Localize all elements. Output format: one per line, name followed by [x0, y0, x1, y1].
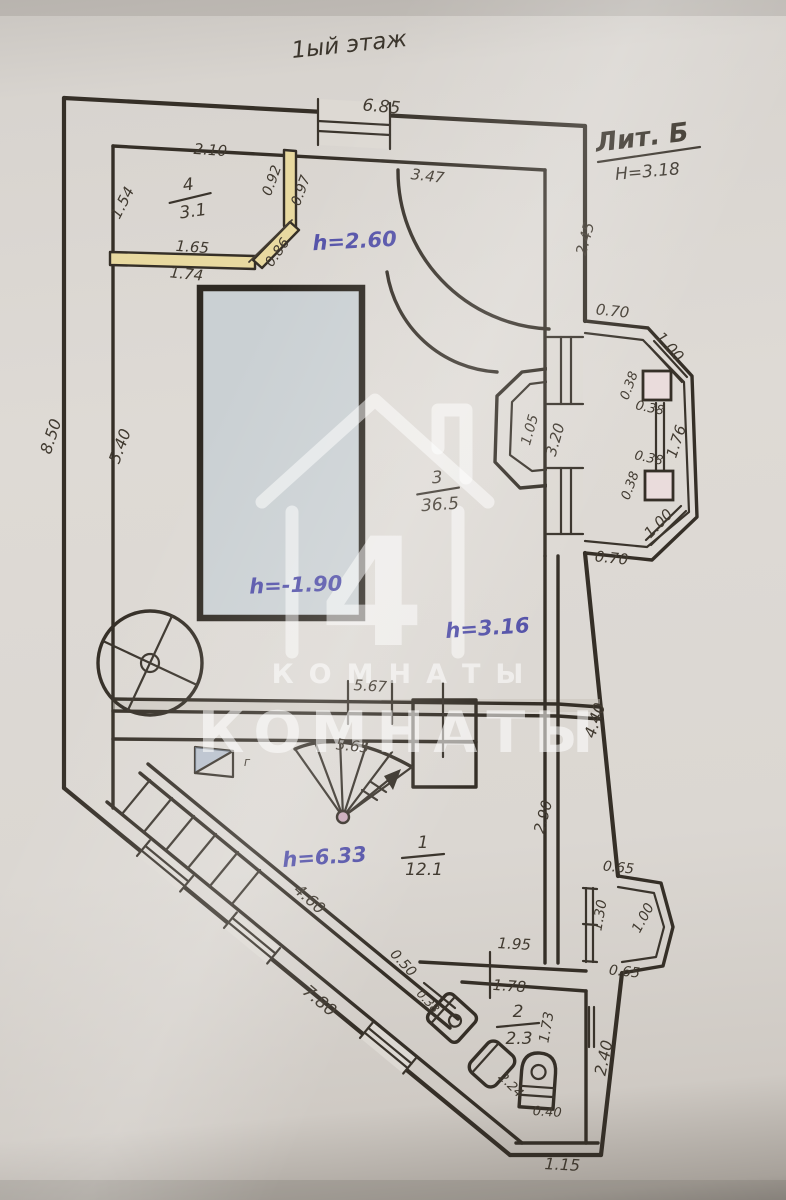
svg-text:2.3: 2.3 — [505, 1029, 532, 1049]
dimension-label: 0.38 — [619, 470, 643, 502]
dimension-label: 1.65 — [175, 237, 210, 257]
dimension-label: 3.47 — [410, 165, 446, 187]
room-label: 43.1 — [166, 172, 214, 224]
dimension-label: г — [244, 755, 251, 769]
dimension-label: 0.92 — [259, 163, 285, 198]
bay-pillar — [645, 471, 673, 500]
svg-text:1: 1 — [418, 833, 429, 853]
diagonal-staircase — [122, 764, 458, 1028]
dimension-label: 0.70 — [595, 300, 630, 321]
toilet — [519, 1052, 557, 1109]
svg-text:12.1: 12.1 — [405, 860, 443, 880]
dimension-label: 0.70 — [594, 547, 629, 568]
dimension-label: 5.67 — [353, 676, 388, 696]
dimension-label: 1.05 — [518, 413, 542, 447]
room-label: 22.3 — [497, 1002, 539, 1049]
watermark-line1: КОМНАТЫ — [272, 659, 539, 690]
watermark-line2: КОМНАТЫ — [198, 700, 603, 766]
paper-top-edge — [0, 0, 786, 16]
dimension-label: 0.65 — [602, 858, 635, 877]
dimension-label: 1.00 — [640, 505, 676, 542]
height-note: h=-1.90 — [249, 571, 343, 598]
curved-walls — [387, 170, 549, 372]
svg-text:3: 3 — [431, 468, 443, 489]
dimension-label: 1.00 — [652, 328, 688, 365]
height-note: h=2.60 — [312, 227, 397, 255]
dimension-label: 2.10 — [193, 140, 228, 160]
dimension-label: 0.40 — [532, 1104, 562, 1121]
room-label: 112.1 — [402, 833, 444, 880]
dimension-label: 0.38 — [618, 370, 642, 402]
dimension-label: 6.85 — [362, 95, 401, 118]
dimension-label: 5.65 — [335, 735, 370, 756]
dimension-label: 2.90 — [530, 798, 556, 835]
bay-pillar — [643, 371, 671, 400]
svg-text:3.1: 3.1 — [178, 200, 208, 224]
dimension-label: 2.45 — [572, 220, 598, 257]
floor-plan: 4 КОМНАТЫ КОМНАТЫ 1ый этажЛит. БН=3.18 4… — [0, 0, 786, 1200]
plan-title: 1ый этаж — [290, 26, 408, 64]
dimension-label: 5.40 — [105, 426, 135, 466]
dimension-label: 1.95 — [497, 934, 531, 954]
floorplan-photo: 4 КОМНАТЫ КОМНАТЫ 1ый этажЛит. БН=3.18 4… — [0, 0, 786, 1200]
dimension-label: 1.74 — [169, 263, 204, 284]
dimension-label: 0.65 — [608, 962, 641, 981]
building-height: Н=3.18 — [614, 159, 681, 185]
dimension-label: 0.38 — [633, 448, 664, 469]
svg-text:36.5: 36.5 — [420, 494, 459, 517]
height-note: h=6.33 — [282, 842, 368, 872]
paper-bottom-shadow — [0, 1180, 786, 1200]
bathroom-fixtures — [425, 991, 557, 1109]
liter-label: Лит. Б — [593, 117, 691, 158]
dimension-label: 1.15 — [544, 1154, 581, 1175]
dimension-label: 1.00 — [629, 901, 658, 936]
dimension-label: 1.73 — [536, 1011, 557, 1044]
svg-text:4: 4 — [182, 174, 196, 195]
height-note: h=3.16 — [445, 613, 531, 643]
svg-text:2: 2 — [513, 1002, 524, 1022]
dimension-label: 8.50 — [36, 416, 65, 456]
dimension-label: 1.78 — [492, 976, 527, 996]
